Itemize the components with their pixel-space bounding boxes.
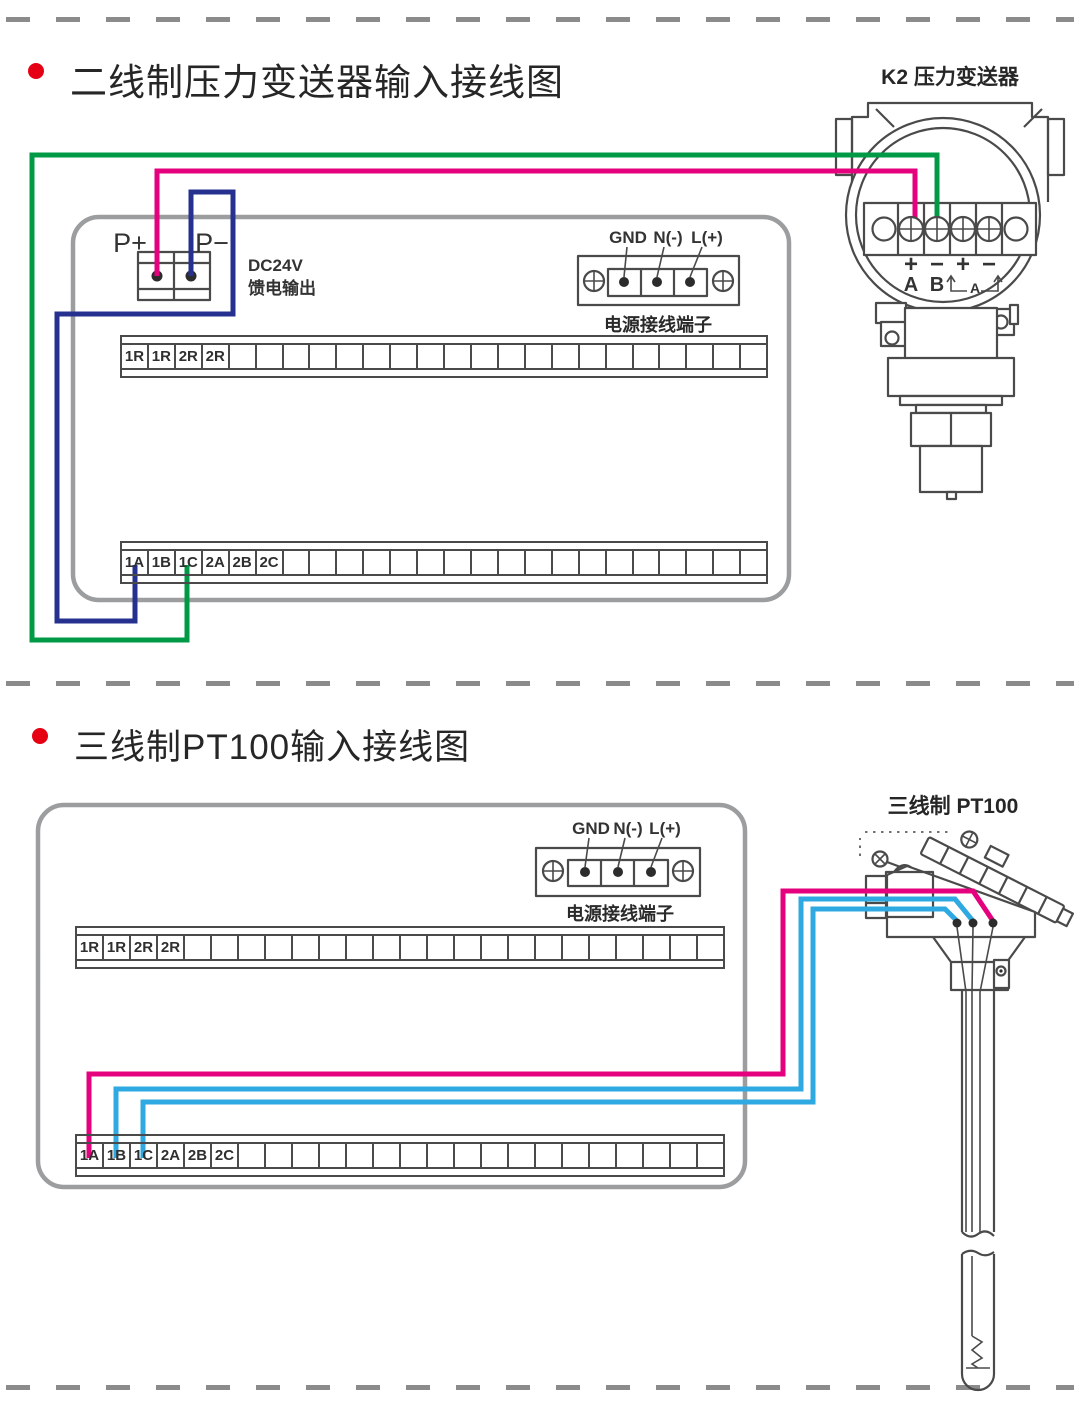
terminal-cell [374,1144,401,1167]
terminal-cell [391,345,418,368]
wiring-diagram-page: 1R1R2R2R 1A1B1C2A2B2C 1R1R2R2R 1A1B1C2A2… [0,0,1080,1411]
diagram-line-art [0,0,1080,1411]
terminal-sign-plus-2: + [956,251,970,279]
terminal-cell [391,551,418,574]
strip-rail [122,337,766,345]
terminal-cell [293,1144,320,1167]
terminal-cell: 1C [131,1144,158,1167]
transmitter-label: K2 压力变送器 [881,61,1019,91]
terminal-strip-input-2: 1A1B1C2A2B2C [75,1134,725,1177]
terminal-cell [660,345,687,368]
terminal-cell [401,1144,428,1167]
terminal-cell [239,1144,266,1167]
terminal-cell [418,551,445,574]
section-bullet [32,728,48,744]
terminal-cell [536,1144,563,1167]
terminal-cell [671,936,698,959]
terminal-name-a: A [904,274,918,297]
power-terminal-caption-2: 电源接线端子 [566,900,674,926]
line-label-2: L(+) [649,819,681,839]
terminal-cell [320,936,347,959]
terminal-cell [714,345,741,368]
pt100-sensor-drawing [860,816,1080,1390]
terminal-cell [563,936,590,959]
terminal-cell [185,936,212,959]
terminal-cell: 2A [203,551,230,574]
section-1-title: 二线制压力变送器输入接线图 [70,52,564,106]
terminal-cell [472,345,499,368]
terminal-cell [364,551,391,574]
terminal-cell: 1B [104,1144,131,1167]
terminal-cell [347,936,374,959]
strip-rail [77,1167,723,1175]
terminal-cell [337,551,364,574]
terminal-cell: 1R [104,936,131,959]
terminal-cell [347,1144,374,1167]
terminal-cell [671,1144,698,1167]
terminal-cell [607,551,634,574]
terminal-cell: 1A [77,1144,104,1167]
feed-output-label: 馈电输出 [248,277,316,300]
terminal-cell [212,936,239,959]
terminal-cell [580,345,607,368]
terminal-cell [509,1144,536,1167]
terminal-cell [284,551,311,574]
terminal-cell: 1A [122,551,149,574]
terminal-cell [482,936,509,959]
section-2-title: 三线制PT100输入接线图 [74,719,470,770]
terminal-cell [563,1144,590,1167]
strip-rail [122,368,766,376]
terminal-sign-minus-2: − [982,251,996,279]
terminal-cell [553,345,580,368]
terminal-cell [634,345,661,368]
terminal-cell [580,551,607,574]
terminal-cell: 1C [176,551,203,574]
strip-rail [122,543,766,551]
section-bullet [28,63,44,79]
terminal-cell [698,936,723,959]
terminal-strip-relay-2: 1R1R2R2R [75,926,725,969]
terminal-cell [428,1144,455,1167]
terminal-cell [509,936,536,959]
neutral-label-1: N(-) [653,228,682,248]
gnd-label-1: GND [609,228,647,248]
strip-rail [122,574,766,582]
terminal-cell [687,551,714,574]
terminal-cell [482,1144,509,1167]
power-terminal-block-1 [578,247,739,305]
terminal-cell [499,345,526,368]
terminal-cell [428,936,455,959]
terminal-cell [741,345,766,368]
terminal-cell [320,1144,347,1167]
gnd-label-2: GND [572,819,610,839]
terminal-cell: 2C [257,551,284,574]
pt100-label: 三线制 PT100 [888,790,1019,820]
p-minus-label: P− [195,228,229,259]
terminal-cell [364,345,391,368]
terminal-cell [644,1144,671,1167]
terminal-cell [590,936,617,959]
strip-rail [77,928,723,936]
terminal-cell [374,936,401,959]
terminal-cell [526,345,553,368]
terminal-cell: 1R [149,345,176,368]
terminal-cell [284,345,311,368]
terminal-cell: 1B [149,551,176,574]
terminal-cell: 2B [185,1144,212,1167]
terminal-cell: 2R [131,936,158,959]
terminal-cell [472,551,499,574]
terminal-cell: 1R [122,345,149,368]
terminal-cell [617,1144,644,1167]
terminal-cell [445,551,472,574]
terminal-name-b: B [930,274,944,297]
power-terminal-caption-1: 电源接线端子 [604,311,712,337]
terminal-bracket-label: A [970,280,980,296]
terminal-cell: 2R [176,345,203,368]
terminal-cell: 2R [158,936,185,959]
terminal-cell [310,345,337,368]
terminal-cell [590,1144,617,1167]
pressure-transmitter-drawing [836,103,1064,499]
terminal-cell [239,936,266,959]
terminal-cell [418,345,445,368]
terminal-cell: 2B [230,551,257,574]
terminal-cell [634,551,661,574]
terminal-cell [445,345,472,368]
terminal-cell [257,345,284,368]
terminal-cell [266,936,293,959]
terminal-cell [266,1144,293,1167]
neutral-label-2: N(-) [613,819,642,839]
p-plus-label: P+ [113,228,147,259]
terminal-strip-input-1: 1A1B1C2A2B2C [120,541,768,584]
dc24v-label: DC24V [248,254,303,277]
terminal-cell [714,551,741,574]
terminal-cell [660,551,687,574]
terminal-cell [310,551,337,574]
terminal-cell [401,936,428,959]
terminal-cell [337,345,364,368]
terminal-cell [698,1144,723,1167]
dc-feed-terminal [138,252,210,300]
terminal-cell [607,345,634,368]
strip-rail [77,959,723,967]
terminal-cell [455,1144,482,1167]
terminal-cell [455,936,482,959]
terminal-cell [553,551,580,574]
strip-rail [77,1136,723,1144]
terminal-cell [687,345,714,368]
terminal-cell [741,551,766,574]
terminal-cell: 2R [203,345,230,368]
terminal-cell [293,936,320,959]
terminal-strip-relay-1: 1R1R2R2R [120,335,768,378]
terminal-cell [536,936,563,959]
terminal-cell: 2A [158,1144,185,1167]
terminal-cell [617,936,644,959]
line-label-1: L(+) [691,228,723,248]
terminal-cell: 1R [77,936,104,959]
terminal-cell [526,551,553,574]
terminal-cell [644,936,671,959]
terminal-cell [499,551,526,574]
power-terminal-block-2 [536,838,700,896]
terminal-cell: 2C [212,1144,239,1167]
terminal-cell [230,345,257,368]
